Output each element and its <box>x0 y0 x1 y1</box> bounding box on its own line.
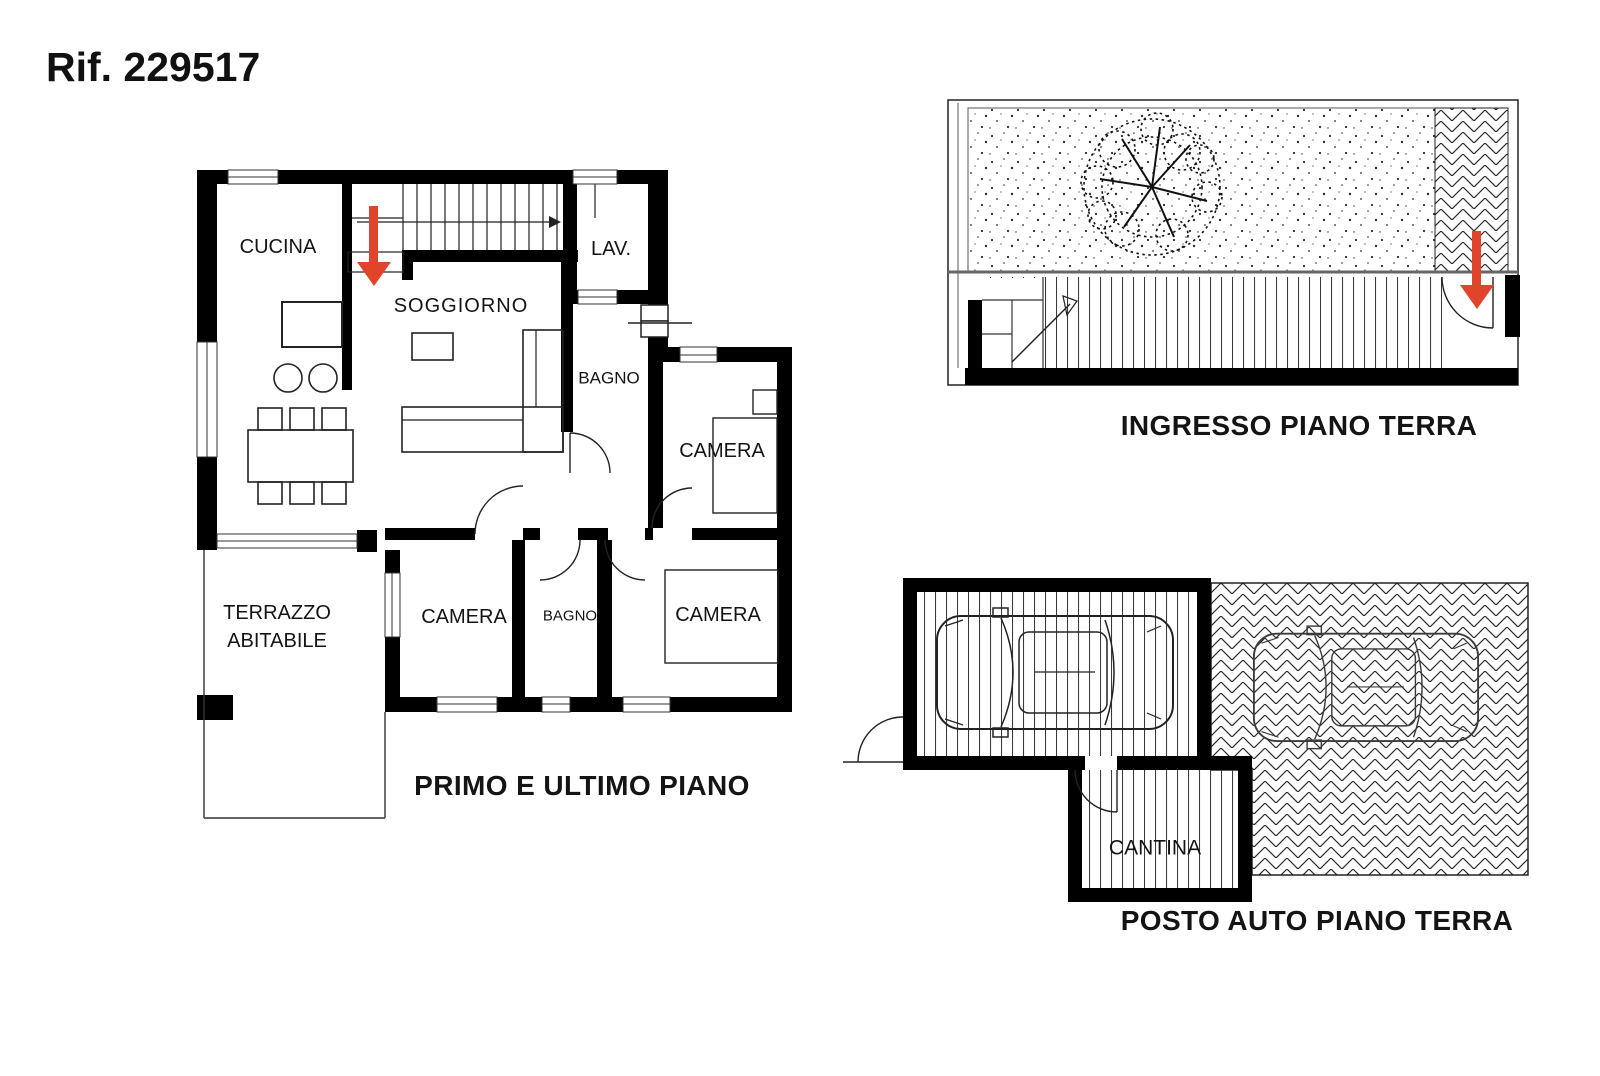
terrace-outline <box>204 550 385 818</box>
plan-title-primo: PRIMO E ULTIMO PIANO <box>414 772 750 800</box>
room-label-bagno-upper: BAGNO <box>578 370 639 387</box>
bed <box>713 418 777 513</box>
garden-gravel-area <box>968 108 1435 272</box>
chair <box>290 408 314 430</box>
room-label-cantina: CANTINA <box>1109 838 1201 859</box>
dining-table <box>248 430 353 482</box>
chair <box>258 408 282 430</box>
stairs-direction-arrow-icon <box>549 216 561 228</box>
plan-ingresso-drawing <box>948 100 1520 385</box>
kitchen-island <box>282 302 342 347</box>
plan-primo-drawing <box>197 170 792 818</box>
sofa <box>402 407 563 452</box>
parking-paved-area <box>1211 583 1528 875</box>
room-label-camera-ne: CAMERA <box>679 441 765 461</box>
nightstand <box>753 390 777 414</box>
chair <box>258 482 282 504</box>
coffee-table <box>412 333 453 360</box>
room-label-camera-se: CAMERA <box>675 605 761 625</box>
room-label-terrazzo-2: ABITABILE <box>227 631 327 651</box>
floorplan-page: Rif. 229517 CUCINA SOGGIORNO LAV. BAGNO … <box>0 0 1600 1076</box>
room-label-bagno-lower: BAGNO <box>543 609 597 624</box>
page-title: Rif. 229517 <box>46 44 260 91</box>
plan-title-ingresso: INGRESSO PIANO TERRA <box>1121 412 1477 440</box>
room-label-camera-sw: CAMERA <box>421 607 507 627</box>
room-label-soggiorno: SOGGIORNO <box>394 296 529 316</box>
chair <box>290 482 314 504</box>
paved-path-area <box>1435 108 1508 272</box>
entrance-door-arc <box>1442 277 1493 328</box>
sofa <box>523 330 563 452</box>
window-symbol-icon <box>628 305 692 337</box>
room-label-lav: LAV. <box>591 239 631 259</box>
cantina-floor <box>1082 770 1238 888</box>
stool <box>309 364 337 392</box>
room-label-cucina: CUCINA <box>240 237 317 257</box>
room-label-terrazzo-1: TERRAZZO <box>223 603 331 623</box>
garage-door-arc <box>843 717 903 762</box>
chair <box>322 482 346 504</box>
chair <box>322 408 346 430</box>
plan-title-posto-auto: POSTO AUTO PIANO TERRA <box>1121 907 1514 935</box>
stool <box>274 364 302 392</box>
